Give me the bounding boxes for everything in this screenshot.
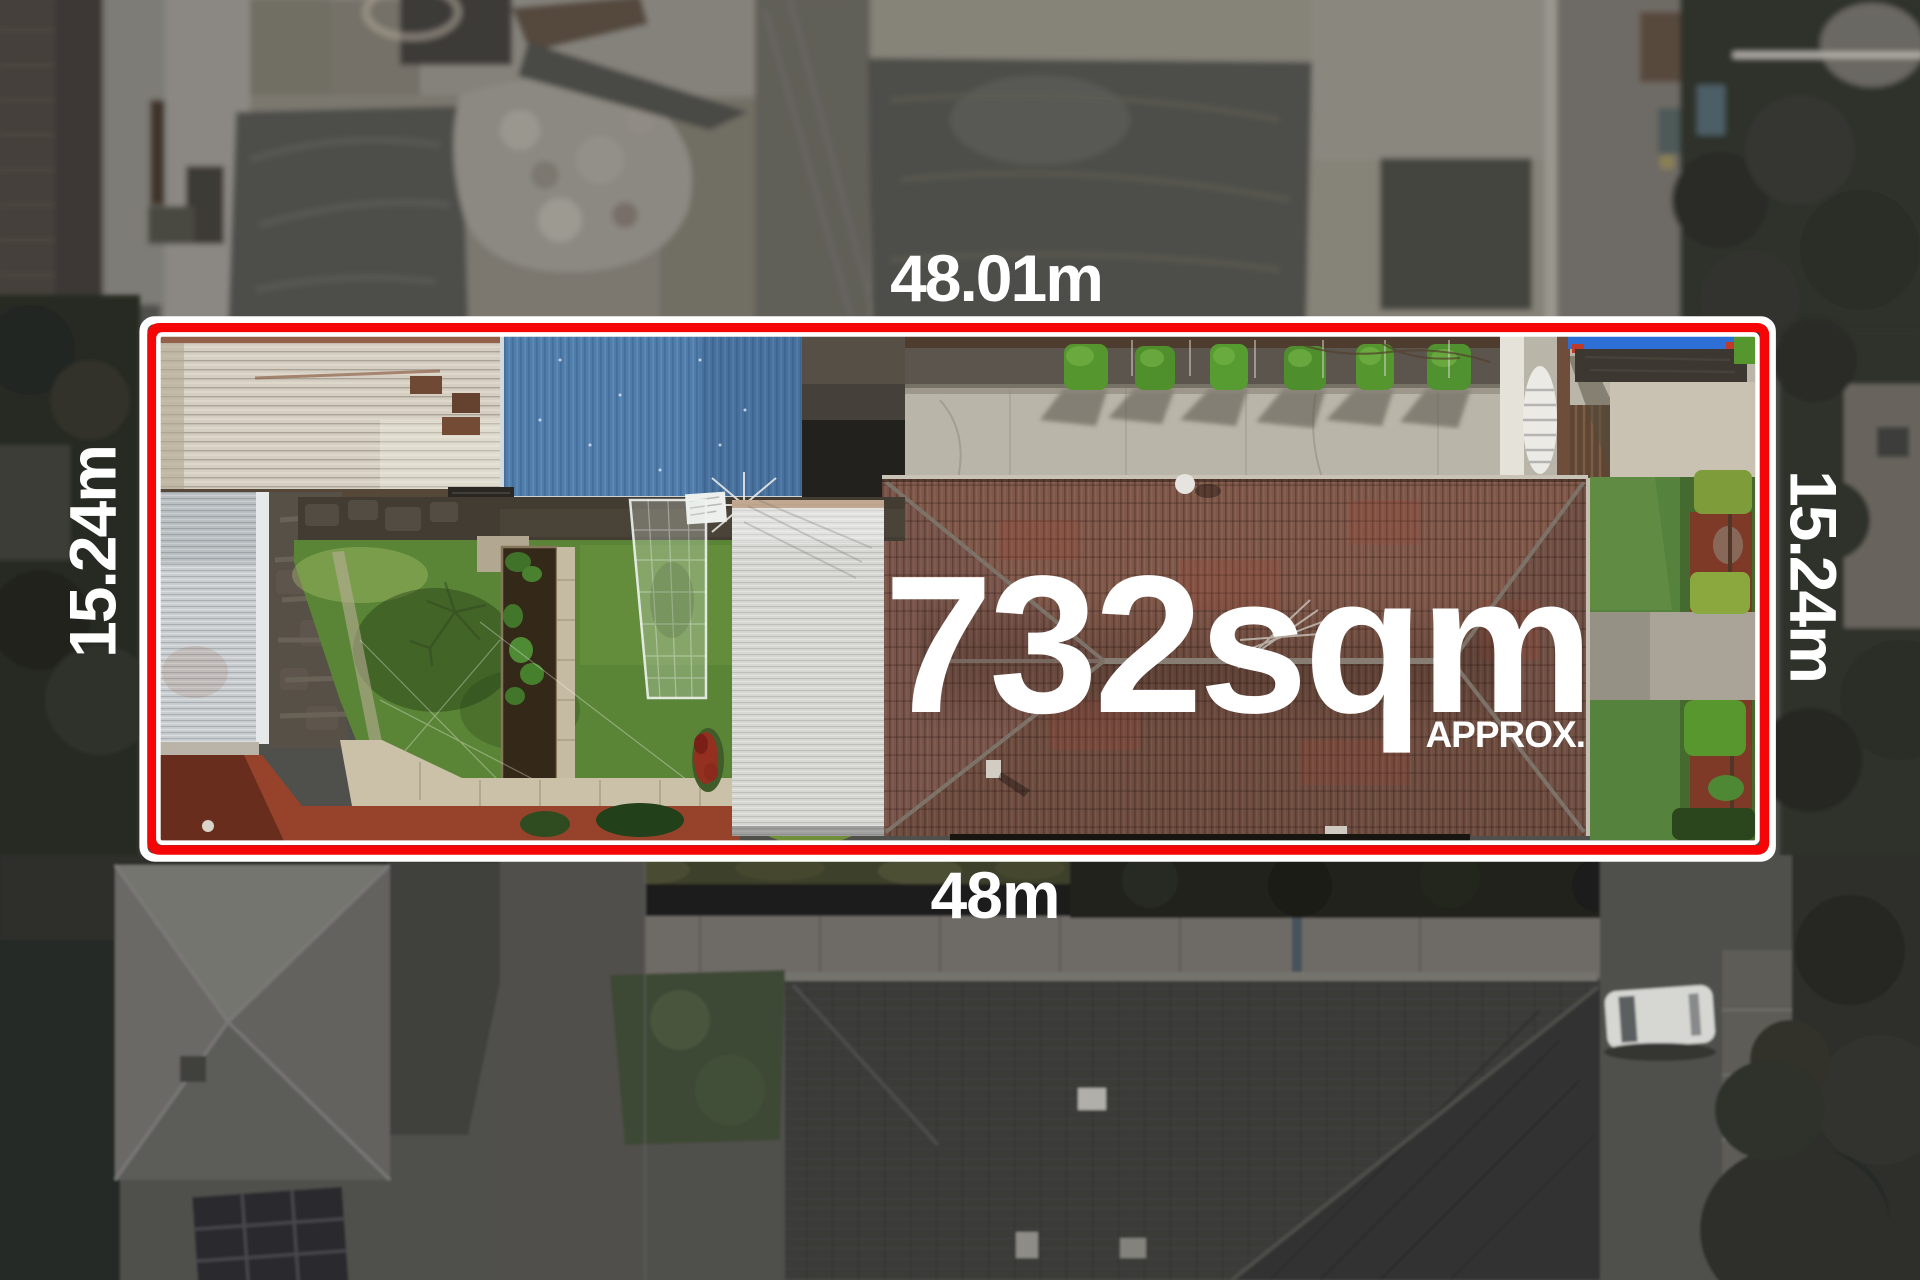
svg-text:15.24m: 15.24m	[1777, 470, 1851, 682]
svg-text:48.01m: 48.01m	[890, 241, 1102, 315]
svg-text:48m: 48m	[930, 858, 1059, 932]
svg-text:15.24m: 15.24m	[55, 446, 129, 658]
svg-text:APPROX.: APPROX.	[1425, 714, 1585, 755]
